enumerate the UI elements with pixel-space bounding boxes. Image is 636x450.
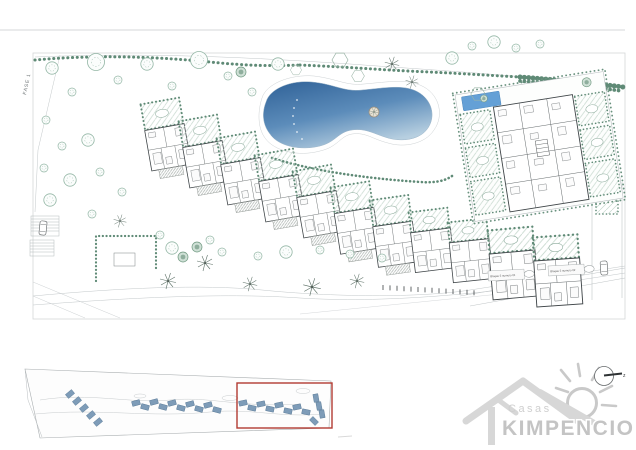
stairs-icon (535, 139, 549, 157)
drawing-sheet: FASE 1 (0, 0, 636, 450)
car-icon (39, 221, 47, 236)
pool-water (263, 82, 432, 148)
site-plan-canvas: FASE 1 (0, 0, 636, 450)
pool (259, 76, 439, 154)
logo-brand: KIMPENCIO (502, 417, 635, 440)
apartment-block (453, 69, 626, 223)
compass-label: z (623, 373, 626, 379)
townhouse-unit (447, 218, 493, 282)
logo-casas: Casas (508, 403, 552, 415)
walkway-ticks (383, 285, 474, 295)
north-arrow-icon: z (595, 367, 627, 386)
scale-tick (338, 436, 352, 437)
minimap-overview (25, 369, 332, 438)
car-icon (600, 261, 608, 275)
townhouse-unit (408, 208, 455, 273)
main-site-plan: FASE 1 (22, 36, 625, 318)
fase-label: FASE 1 (22, 73, 32, 96)
townhouse-unit (487, 227, 539, 300)
plaza-table (114, 253, 135, 266)
